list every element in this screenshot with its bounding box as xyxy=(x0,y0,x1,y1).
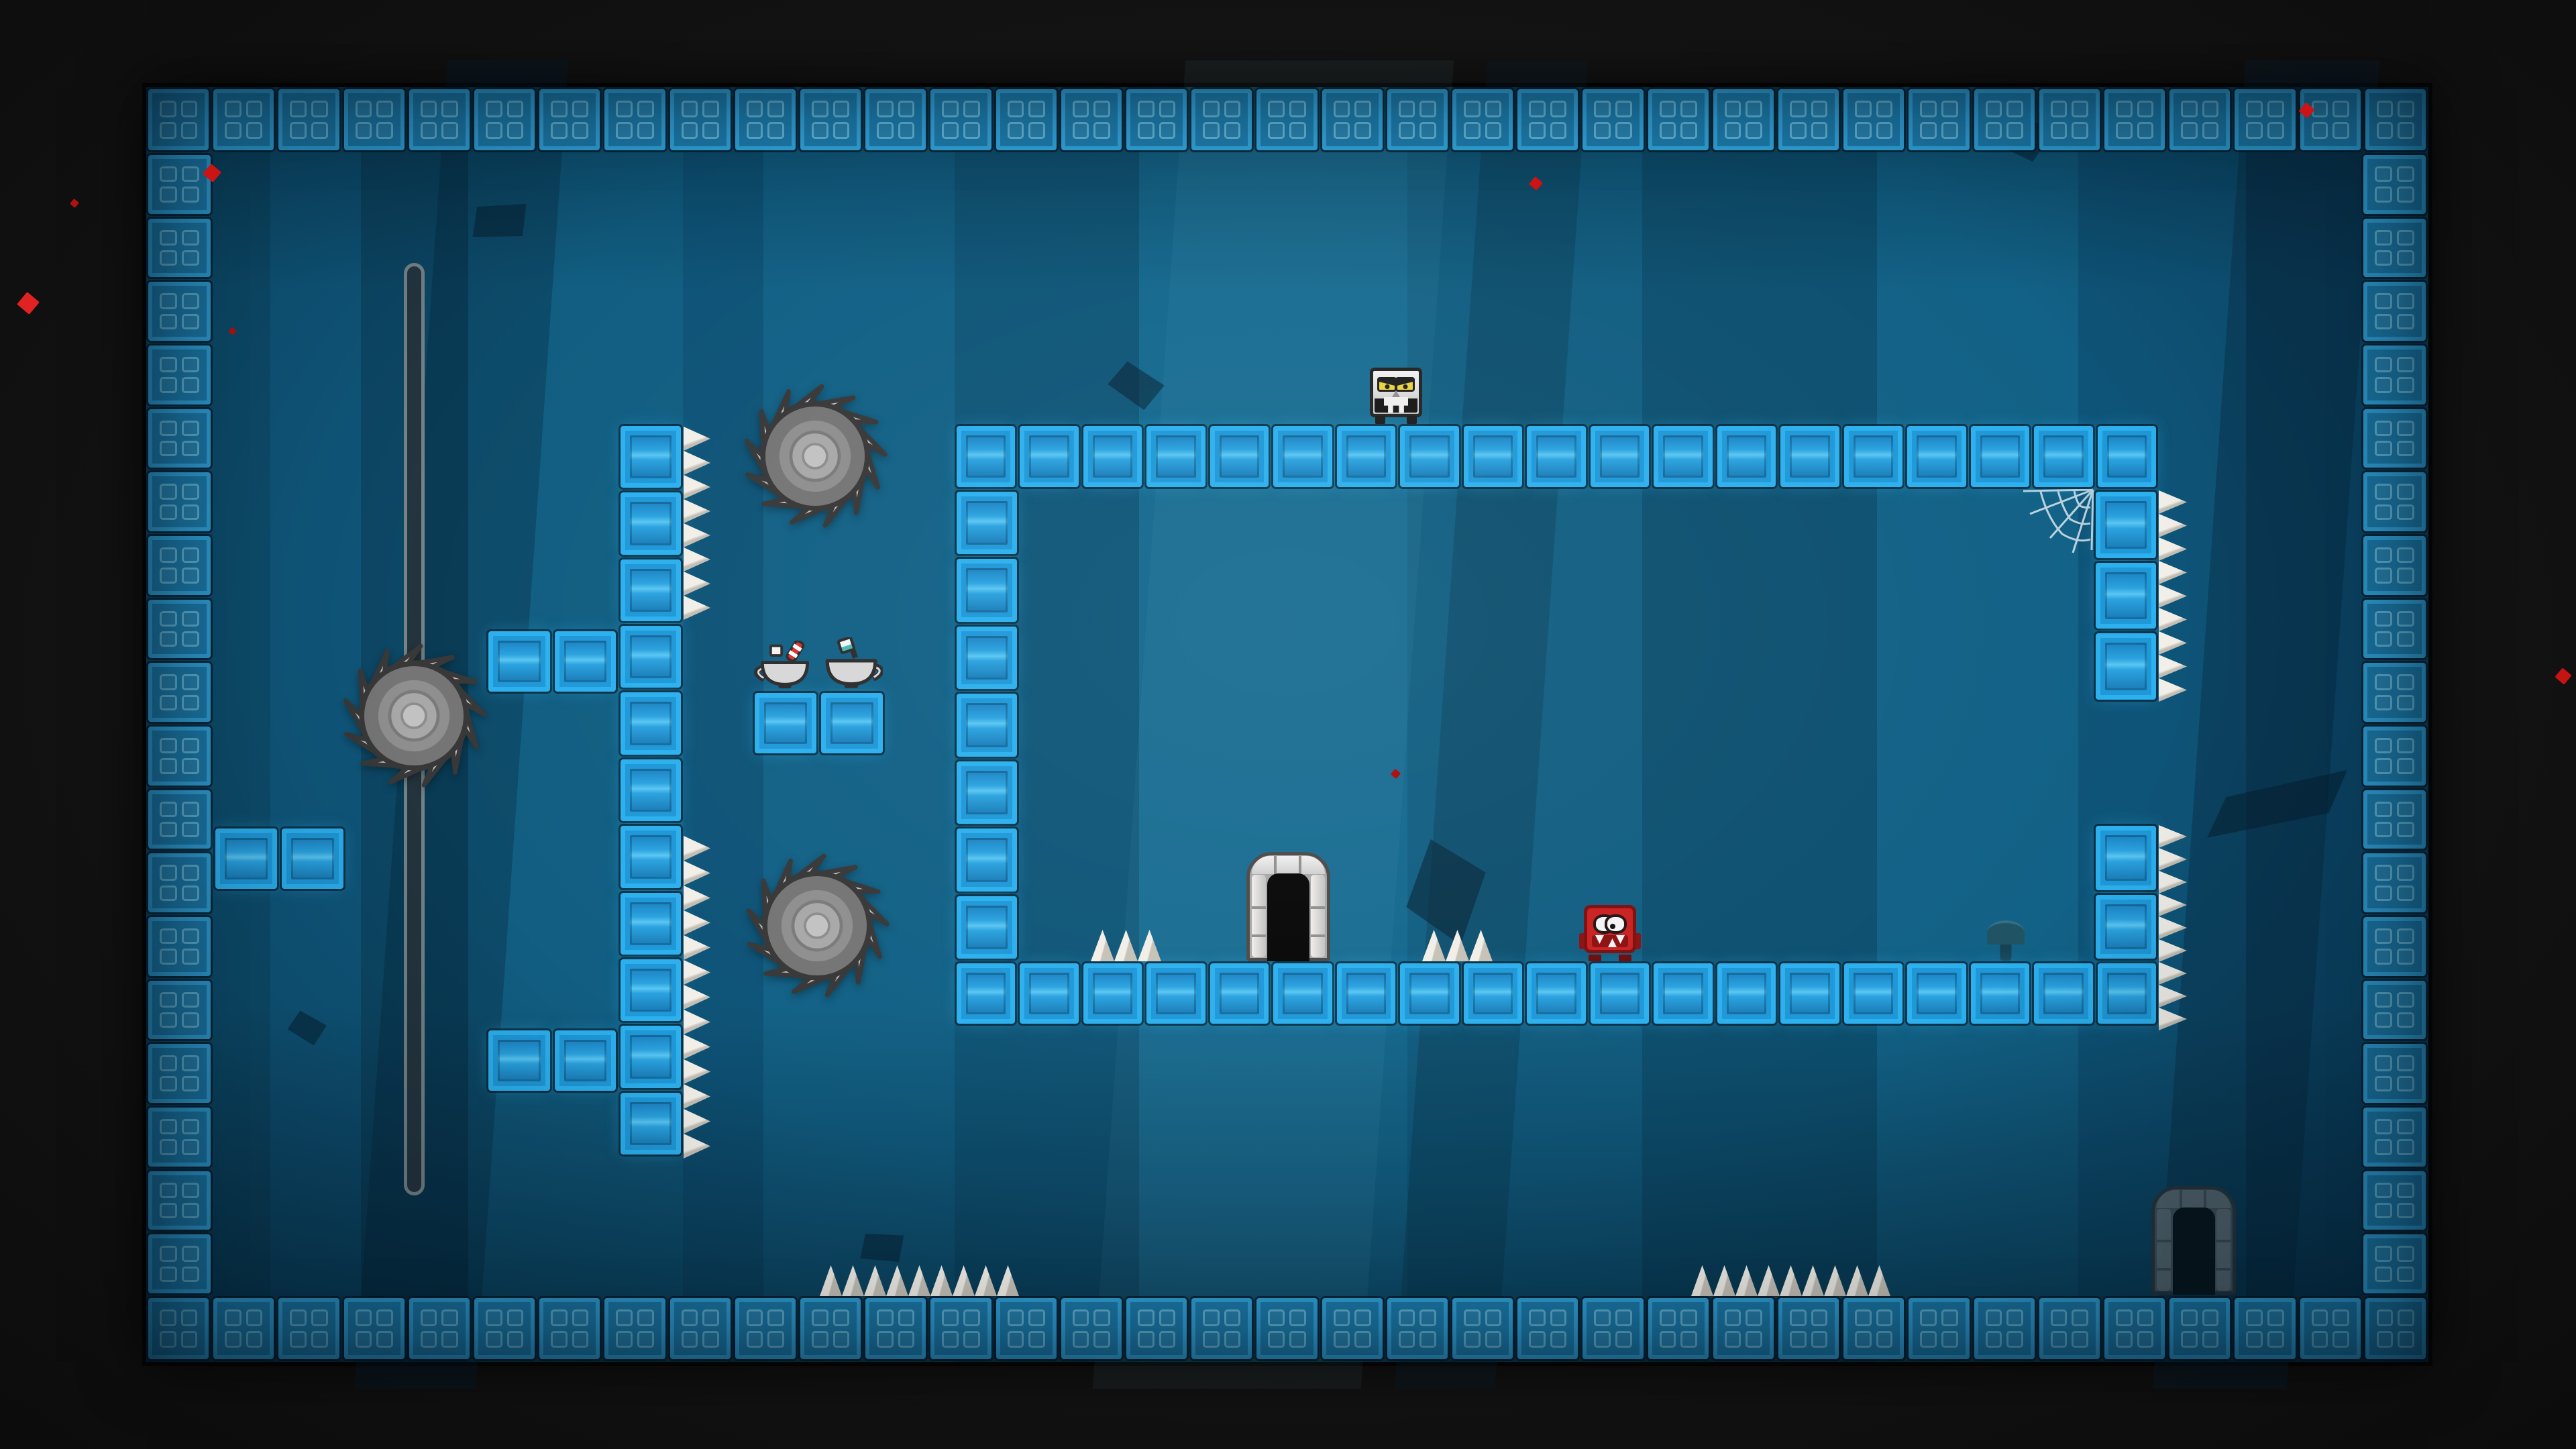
blood-particle xyxy=(203,164,221,182)
game-viewport[interactable] xyxy=(0,0,2576,1449)
blood-particle xyxy=(1529,176,1543,191)
particles-layer xyxy=(0,0,2576,1449)
blood-particle xyxy=(2555,667,2571,684)
blood-particle xyxy=(228,327,237,335)
blood-particle xyxy=(17,292,40,315)
blood-particle xyxy=(70,199,79,208)
blood-particle xyxy=(1391,769,1401,779)
blood-particle xyxy=(2299,103,2315,119)
